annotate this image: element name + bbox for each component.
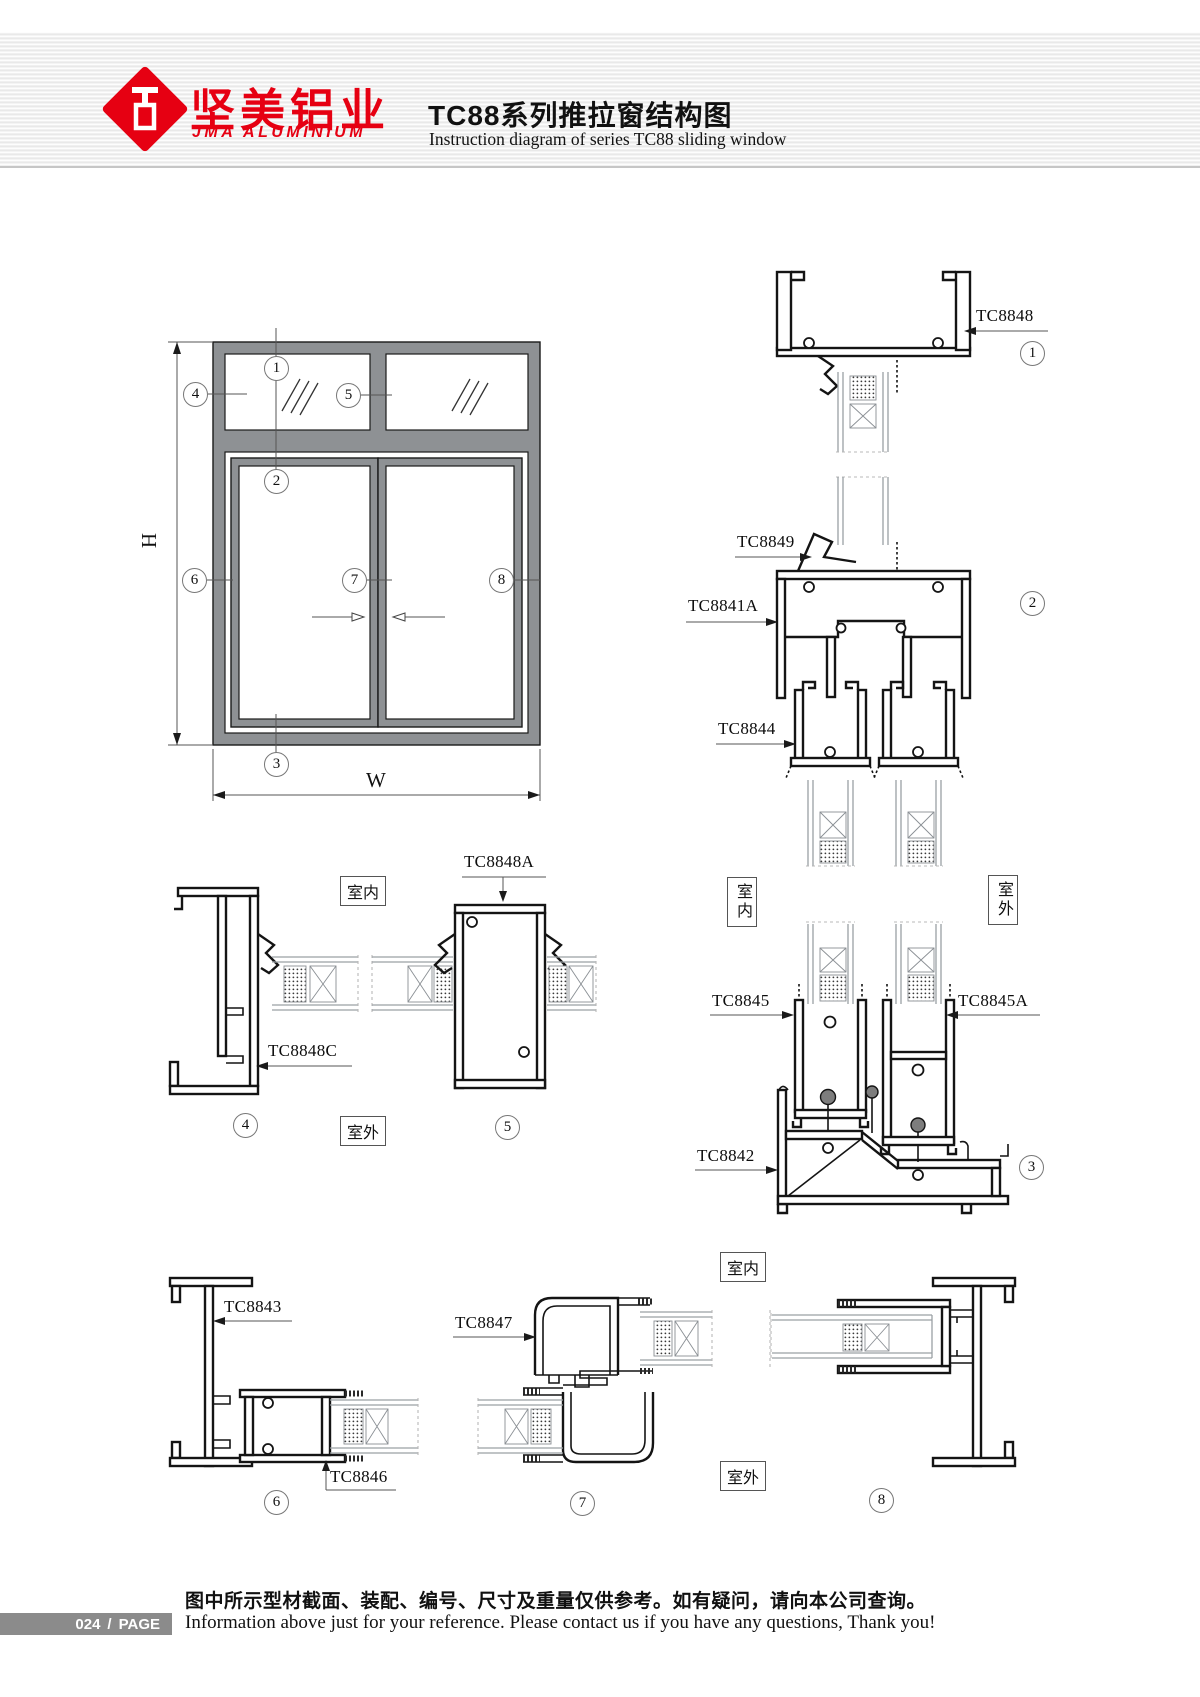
callout-3-detail: 3 [1019, 1155, 1044, 1180]
section-8-right-jamb [771, 1278, 1015, 1466]
callout-1-detail: 1 [1020, 341, 1045, 366]
label-tc8842: TC8842 [697, 1146, 755, 1166]
callout-4-elevation: 4 [183, 382, 208, 407]
page: 坚美铝业 JMA ALUMINIUM TC88系列推拉窗结构图 Instruct… [0, 0, 1200, 1697]
callout-2-detail: 2 [1020, 591, 1045, 616]
callout-6-detail: 6 [264, 1490, 289, 1515]
section-4-5 [170, 888, 596, 1094]
dimension-width-label: W [366, 768, 386, 793]
callout-2-elevation: 2 [264, 469, 289, 494]
label-tc8847: TC8847 [455, 1313, 513, 1333]
label-tc8848a: TC8848A [464, 852, 534, 872]
room-indoor-label-col: 室内 [727, 877, 757, 927]
room-outdoor-label-7: 室外 [720, 1461, 766, 1491]
section-2-transom [777, 534, 970, 922]
callout-8-detail: 8 [869, 1488, 894, 1513]
label-tc8846: TC8846 [330, 1467, 388, 1487]
section-7-interlock [478, 1298, 770, 1462]
callout-7-elevation: 7 [342, 568, 367, 593]
label-tc8849: TC8849 [737, 532, 795, 552]
label-tc8848: TC8848 [976, 306, 1034, 326]
label-tc8845a: TC8845A [958, 991, 1028, 1011]
dimension-height-label: H [137, 533, 162, 548]
section-6-left-jamb [170, 1278, 418, 1466]
label-tc8848c: TC8848C [268, 1041, 337, 1061]
label-tc8843: TC8843 [224, 1297, 282, 1317]
callout-4-detail: 4 [233, 1113, 258, 1138]
section-3-sill [778, 924, 1008, 1213]
callout-3-elevation: 3 [264, 752, 289, 777]
callout-7-detail: 7 [570, 1491, 595, 1516]
callout-6-elevation: 6 [182, 568, 207, 593]
room-indoor-label-45: 室内 [340, 876, 386, 906]
room-outdoor-label-col: 室外 [988, 875, 1018, 925]
section-1-head-frame [777, 272, 970, 545]
drawing-canvas [0, 0, 1200, 1697]
label-tc8841a: TC8841A [688, 596, 758, 616]
callout-5-elevation: 5 [336, 383, 361, 408]
room-outdoor-label-45: 室外 [340, 1116, 386, 1146]
room-indoor-label-7: 室内 [720, 1252, 766, 1282]
label-tc8844: TC8844 [718, 719, 776, 739]
label-tc8845: TC8845 [712, 991, 770, 1011]
callout-1-elevation: 1 [264, 356, 289, 381]
callout-5-detail: 5 [495, 1115, 520, 1140]
callout-8-elevation: 8 [489, 568, 514, 593]
